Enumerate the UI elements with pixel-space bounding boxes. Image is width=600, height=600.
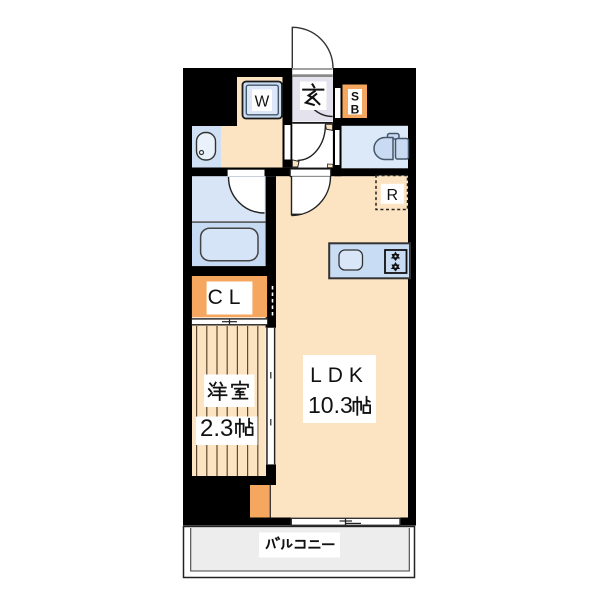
svg-text:2.3: 2.3 — [200, 415, 233, 442]
svg-text:R: R — [387, 187, 399, 204]
svg-text:S: S — [351, 90, 359, 104]
svg-text:LDK: LDK — [310, 364, 369, 387]
svg-text:10.3: 10.3 — [308, 392, 353, 418]
svg-text:CL: CL — [208, 286, 247, 309]
svg-text:B: B — [351, 103, 360, 117]
svg-text:W: W — [255, 94, 270, 111]
